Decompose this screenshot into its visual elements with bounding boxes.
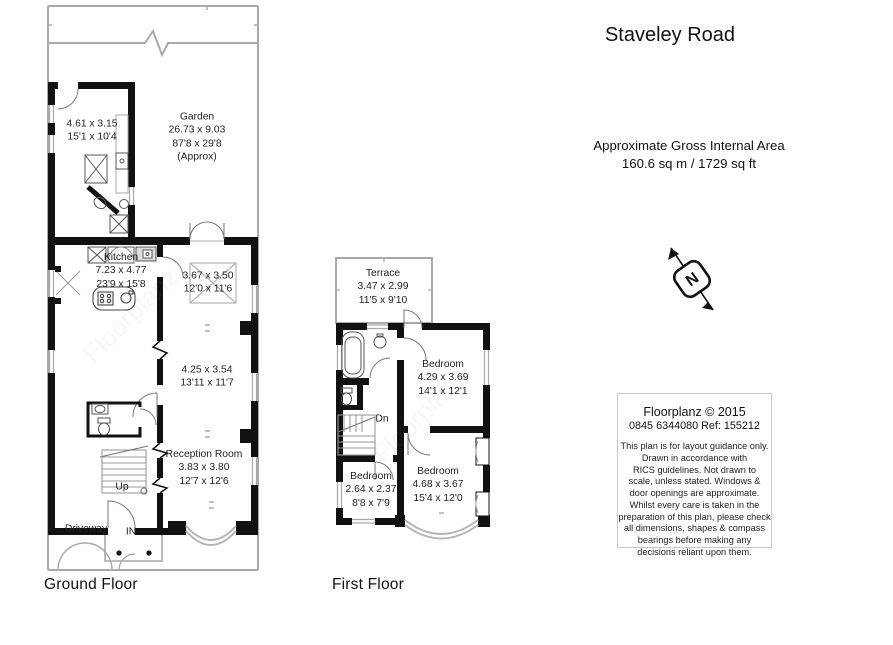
dining-room-label: 4.25 x 3.54 13'11 x 11'7 [180, 364, 233, 391]
area-value: 160.6 sq m / 1729 sq ft [558, 155, 820, 173]
north-compass-icon: N [655, 238, 729, 320]
driveway-gate-arcs [58, 543, 135, 570]
kitchen-label: Kitchen 7.23 x 4.77 23'9 x 15'8 [96, 251, 147, 291]
floorplanz-company: Floorplanz © 2015 [618, 405, 771, 419]
page-title: Staveley Road [565, 24, 775, 47]
garden-french-doors [190, 222, 224, 241]
gross-internal-area: Approximate Gross Internal Area 160.6 sq… [558, 137, 820, 173]
bedroom-rear-label: Bedroom 4.29 x 3.69 14'1 x 12'1 [418, 358, 469, 398]
floorplanz-info-box: Floorplanz © 2015 0845 6344080 Ref: 1552… [617, 393, 772, 548]
ff-bay-window [405, 513, 478, 539]
outbuilding-label: 4.61 x 3.15 15'1 x 10'4 [67, 118, 118, 145]
outbuilding-fixtures [58, 89, 129, 233]
first-floor-title: First Floor [332, 576, 404, 594]
ground-floor-plan [40, 5, 270, 605]
garden-label: Garden 26.73 x 9.03 87'8 x 29'8 (Approx) [169, 110, 226, 164]
terrace-label: Terrace 3.47 x 2.99 11'5 x 9'10 [358, 267, 409, 307]
terrace-door [404, 310, 422, 328]
bathroom-fixtures [341, 332, 386, 405]
ground-wc [88, 403, 140, 436]
reception-room-label: Reception Room 3.83 x 3.80 12'7 x 12'6 [166, 448, 243, 488]
bedroom-front-label: Bedroom 4.68 x 3.67 15'4 x 12'0 [413, 465, 464, 505]
up-label: Up [115, 482, 128, 493]
garden-room-label: 3.67 x 3.50 12'0 x 11'6 [183, 270, 234, 297]
driveway-label: Driveway [65, 524, 107, 535]
bay-window [186, 526, 236, 545]
first-floor-plan [330, 250, 500, 595]
floorplan-page: Garden 26.73 x 9.03 87'8 x 29'8 (Approx)… [0, 0, 893, 645]
area-label: Approximate Gross Internal Area [558, 137, 820, 155]
ground-floor-title: Ground Floor [44, 576, 138, 594]
entrance-in-label: IN [126, 527, 136, 538]
floorplanz-disclaimer: This plan is for layout guidance only. D… [618, 441, 771, 559]
bedroom-small-label: Bedroom 2.64 x 2.37 8'8 x 7'9 [346, 470, 397, 510]
stairs-down [338, 415, 375, 455]
down-label: Dn [375, 414, 388, 425]
floorplanz-phone-ref: 0845 6344080 Ref: 155212 [618, 420, 771, 432]
